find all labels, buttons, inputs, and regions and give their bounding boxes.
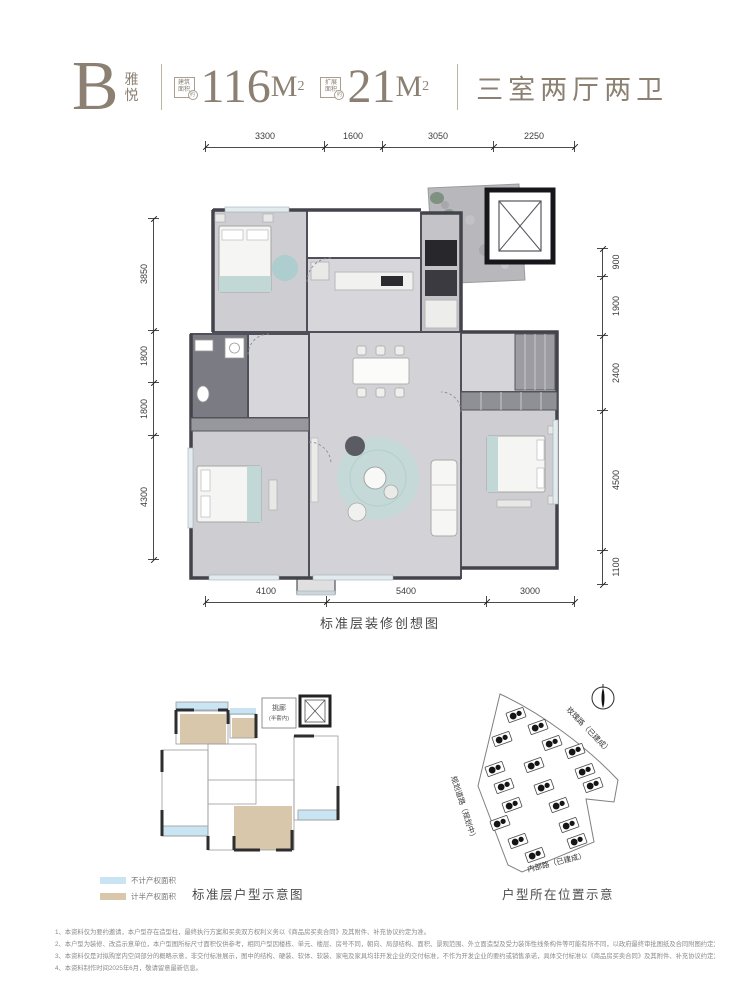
tv-console <box>311 438 318 502</box>
disclaimer-line: 2、本户型为装修、改造示意单位，本户型图所标尺寸面积仅供参考，相同户型因楼栋、单… <box>55 939 715 951</box>
floor-plan-caption: 标准层装修创想图 <box>185 613 575 632</box>
no-property-area <box>298 810 338 820</box>
layout-summary: 三室两厅两卫 <box>476 68 668 107</box>
schematic-caption: 标准层户型示意图 <box>148 884 348 903</box>
dim-value: 4500 <box>611 470 621 490</box>
dim-value: 1800 <box>139 346 149 366</box>
tag-line: 扩展 <box>325 80 337 87</box>
dim-value: 3050 <box>428 131 448 141</box>
chair <box>376 346 385 355</box>
tag-suffix: 约 <box>188 90 198 100</box>
dining-table <box>353 358 409 384</box>
dining-set <box>353 346 409 397</box>
built-area-unit: M <box>271 70 298 104</box>
site-location-map: 玫瑰路（已建成） 规划道路（规划中） 内部路（已建成） <box>438 682 678 897</box>
chair <box>395 346 404 355</box>
extended-area-group: 扩展 面积 约 21M2 <box>320 63 429 111</box>
pillow <box>537 440 544 460</box>
dim-value: 1900 <box>611 296 621 316</box>
dim-value: 1600 <box>343 131 363 141</box>
extended-area-unit: M <box>395 70 422 104</box>
bench <box>269 480 277 510</box>
chair <box>357 346 366 355</box>
bench <box>497 500 531 507</box>
dim-value: 4300 <box>139 487 149 507</box>
schematic-elevator <box>300 696 330 726</box>
extended-area-tag: 扩展 面积 约 <box>320 77 341 98</box>
half-property-area <box>180 714 226 744</box>
nightstand <box>263 214 273 222</box>
cooktop <box>381 276 403 286</box>
half-property-area <box>232 718 256 738</box>
dim-value: 900 <box>611 254 621 269</box>
hallway <box>248 334 309 418</box>
dim-value: 1800 <box>139 399 149 419</box>
pillow <box>201 496 210 517</box>
pillow <box>222 230 243 240</box>
bed-throw <box>219 276 271 292</box>
corridor-sublabel: (半套内) <box>269 714 289 722</box>
sink <box>195 340 213 351</box>
pillow <box>537 468 544 488</box>
north-arrow-icon <box>592 684 614 709</box>
unit-name-top: 雅 <box>125 71 139 87</box>
armchair <box>348 503 366 521</box>
armchair <box>345 436 365 456</box>
corridor-label-box: 挑廊 (半套内) <box>262 698 296 728</box>
extended-area-value: 21 <box>347 63 395 111</box>
bed-throw <box>487 436 498 492</box>
bed-throw <box>247 466 261 522</box>
dim-value: 1100 <box>611 557 621 576</box>
built-area-group: 建筑 面积 约 116M2 <box>174 63 305 111</box>
legend-swatch-blue <box>100 877 126 884</box>
unit-name: 雅 悦 <box>125 71 139 103</box>
corridor-label: 挑廊 <box>272 703 286 712</box>
tag-line: 建筑 <box>178 80 190 87</box>
dim-value: 2250 <box>524 131 544 141</box>
sofa <box>431 460 457 536</box>
chair <box>357 388 366 397</box>
fridge <box>311 262 329 280</box>
floor-plan-page: B 雅 悦 建筑 面积 约 116M2 扩展 面积 约 21M2 三室两厅两卫 <box>0 0 740 1007</box>
coffee-table <box>364 467 386 489</box>
dimension-top: 3300 1600 3050 2250 <box>205 130 575 154</box>
pillow <box>247 230 268 240</box>
round-rug <box>272 255 298 281</box>
unit-block-letter: B <box>72 52 119 122</box>
toilet <box>197 386 209 402</box>
pillow <box>201 470 210 491</box>
chair <box>376 388 385 397</box>
plant-icon <box>430 192 444 204</box>
site-map-caption: 户型所在位置示意 <box>438 884 678 903</box>
decorated-floor-plan <box>185 180 575 600</box>
tag-suffix: 约 <box>334 90 344 100</box>
no-property-area <box>162 826 208 836</box>
dim-value: 3850 <box>139 264 149 284</box>
header-divider <box>457 64 458 110</box>
dimension-right: 900 1900 2400 4500 1100 <box>595 248 625 585</box>
disclaimer-line: 4、本资料制作时间2025年6月，敬请留意最新信息。 <box>55 963 715 975</box>
elevator-shaft <box>487 190 553 262</box>
header-divider <box>161 64 162 110</box>
side-table <box>384 485 398 499</box>
header: B 雅 悦 建筑 面积 约 116M2 扩展 面积 约 21M2 三室两厅两卫 <box>0 50 740 124</box>
disclaimer-line: 3、本资料仅是对拟购室内空间部分的概略示意，非交付标准展示，图中的结构、硬装、软… <box>55 951 715 963</box>
half-property-area <box>234 806 292 850</box>
extended-area-sup: 2 <box>422 79 429 95</box>
nightstand <box>215 214 225 222</box>
legend-swatch-tan <box>100 893 126 900</box>
chair <box>395 388 404 397</box>
unit-name-bottom: 悦 <box>125 87 139 103</box>
road-label-left: 规划道路（规划中） <box>449 775 479 842</box>
schematic-unit-plan: 挑廊 (半套内) <box>148 690 348 890</box>
disclaimer-line: 1、本资料仅为要约邀请，本户型存在造型柱，最终执行方案和买卖双方权利义务以《商品… <box>55 927 715 939</box>
built-area-tag: 建筑 面积 约 <box>174 77 195 98</box>
built-area-sup: 2 <box>297 79 304 95</box>
built-area-value: 116 <box>201 63 271 111</box>
dim-value: 2400 <box>611 363 621 383</box>
dim-value: 3300 <box>255 131 275 141</box>
dimension-left: 3850 1800 1800 4300 <box>140 218 166 560</box>
disclaimer-notes: 1、本资料仅为要约邀请，本户型存在造型柱，最终执行方案和买卖双方权利义务以《商品… <box>55 927 715 975</box>
shower <box>225 338 244 358</box>
